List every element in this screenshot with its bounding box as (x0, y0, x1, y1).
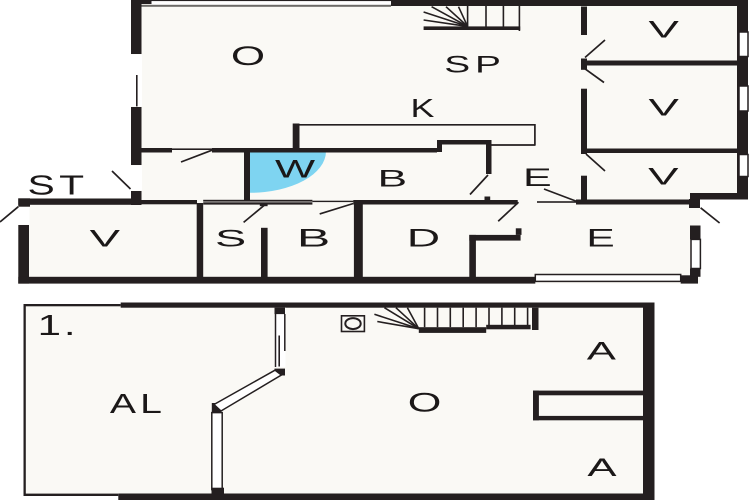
svg-text:V: V (648, 94, 679, 121)
svg-text:SP: SP (444, 51, 506, 78)
svg-text:AL: AL (110, 389, 166, 420)
svg-text:O: O (408, 387, 442, 418)
svg-text:O: O (231, 40, 265, 70)
svg-text:D: D (407, 224, 440, 252)
svg-text:B: B (297, 224, 330, 252)
svg-text:B: B (377, 165, 407, 192)
svg-text:1.: 1. (38, 308, 79, 341)
svg-text:K: K (411, 94, 435, 123)
svg-text:A: A (587, 337, 616, 365)
svg-text:V: V (648, 16, 679, 43)
svg-text:V: V (648, 163, 679, 190)
svg-text:E: E (523, 164, 552, 192)
svg-text:E: E (586, 224, 614, 252)
svg-text:S: S (215, 225, 246, 252)
svg-text:ST: ST (28, 170, 89, 201)
svg-text:A: A (587, 454, 616, 482)
svg-text:W: W (275, 155, 315, 183)
svg-text:V: V (90, 225, 121, 252)
